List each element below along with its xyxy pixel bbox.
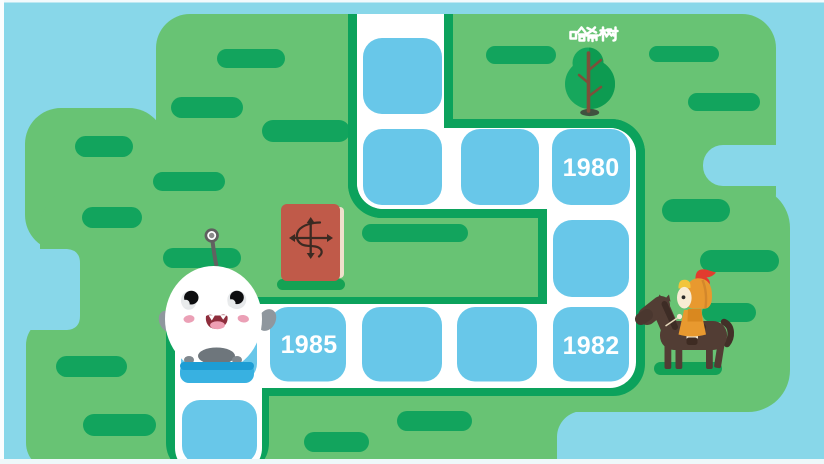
svg-text:1980: 1980: [563, 154, 620, 182]
svg-text:1982: 1982: [563, 332, 620, 360]
svg-text:1985: 1985: [281, 331, 338, 359]
